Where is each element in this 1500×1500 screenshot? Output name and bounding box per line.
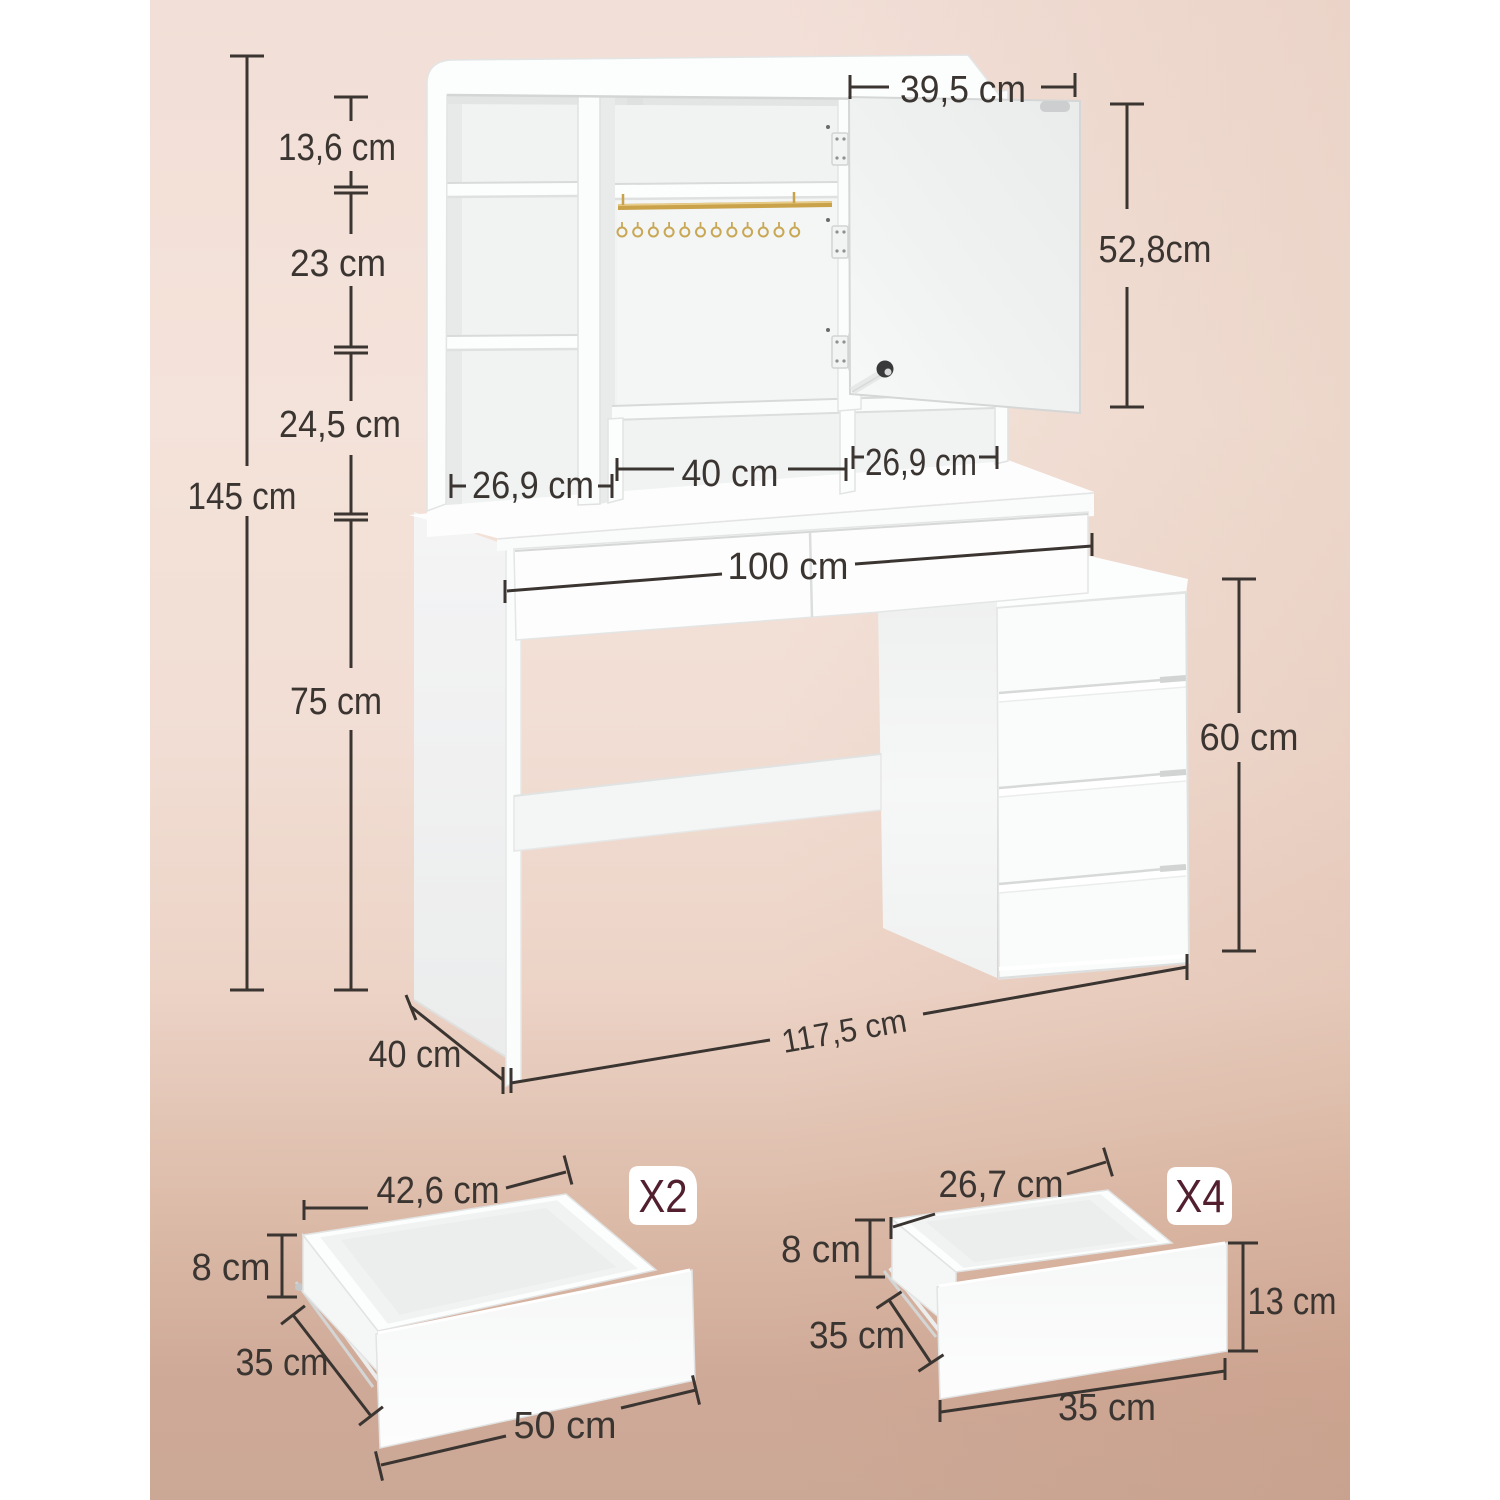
svg-text:13 cm: 13 cm xyxy=(1248,1281,1337,1323)
svg-text:24,5 cm: 24,5 cm xyxy=(279,404,401,446)
svg-text:50 cm: 50 cm xyxy=(514,1405,617,1447)
svg-text:100 cm: 100 cm xyxy=(728,546,849,588)
svg-text:40 cm: 40 cm xyxy=(682,453,779,495)
svg-text:39,5 cm: 39,5 cm xyxy=(900,69,1026,111)
svg-text:75 cm: 75 cm xyxy=(290,681,382,723)
svg-text:35 cm: 35 cm xyxy=(236,1342,329,1384)
svg-text:52,8cm: 52,8cm xyxy=(1099,229,1212,271)
svg-text:35 cm: 35 cm xyxy=(1058,1387,1156,1429)
svg-text:26,9 cm: 26,9 cm xyxy=(472,465,594,507)
svg-text:8 cm: 8 cm xyxy=(192,1247,271,1289)
svg-text:26,7 cm: 26,7 cm xyxy=(939,1164,1064,1206)
svg-text:42,6 cm: 42,6 cm xyxy=(377,1170,500,1212)
svg-text:8 cm: 8 cm xyxy=(781,1229,861,1271)
svg-text:13,6 cm: 13,6 cm xyxy=(278,127,396,169)
svg-text:23 cm: 23 cm xyxy=(290,243,386,285)
svg-text:X4: X4 xyxy=(1175,1170,1225,1222)
svg-text:40 cm: 40 cm xyxy=(369,1034,462,1076)
svg-text:145 cm: 145 cm xyxy=(188,476,297,518)
svg-text:35 cm: 35 cm xyxy=(809,1315,905,1357)
svg-text:60 cm: 60 cm xyxy=(1200,717,1299,759)
svg-text:X2: X2 xyxy=(639,1170,688,1222)
svg-text:26,9 cm: 26,9 cm xyxy=(865,442,977,484)
